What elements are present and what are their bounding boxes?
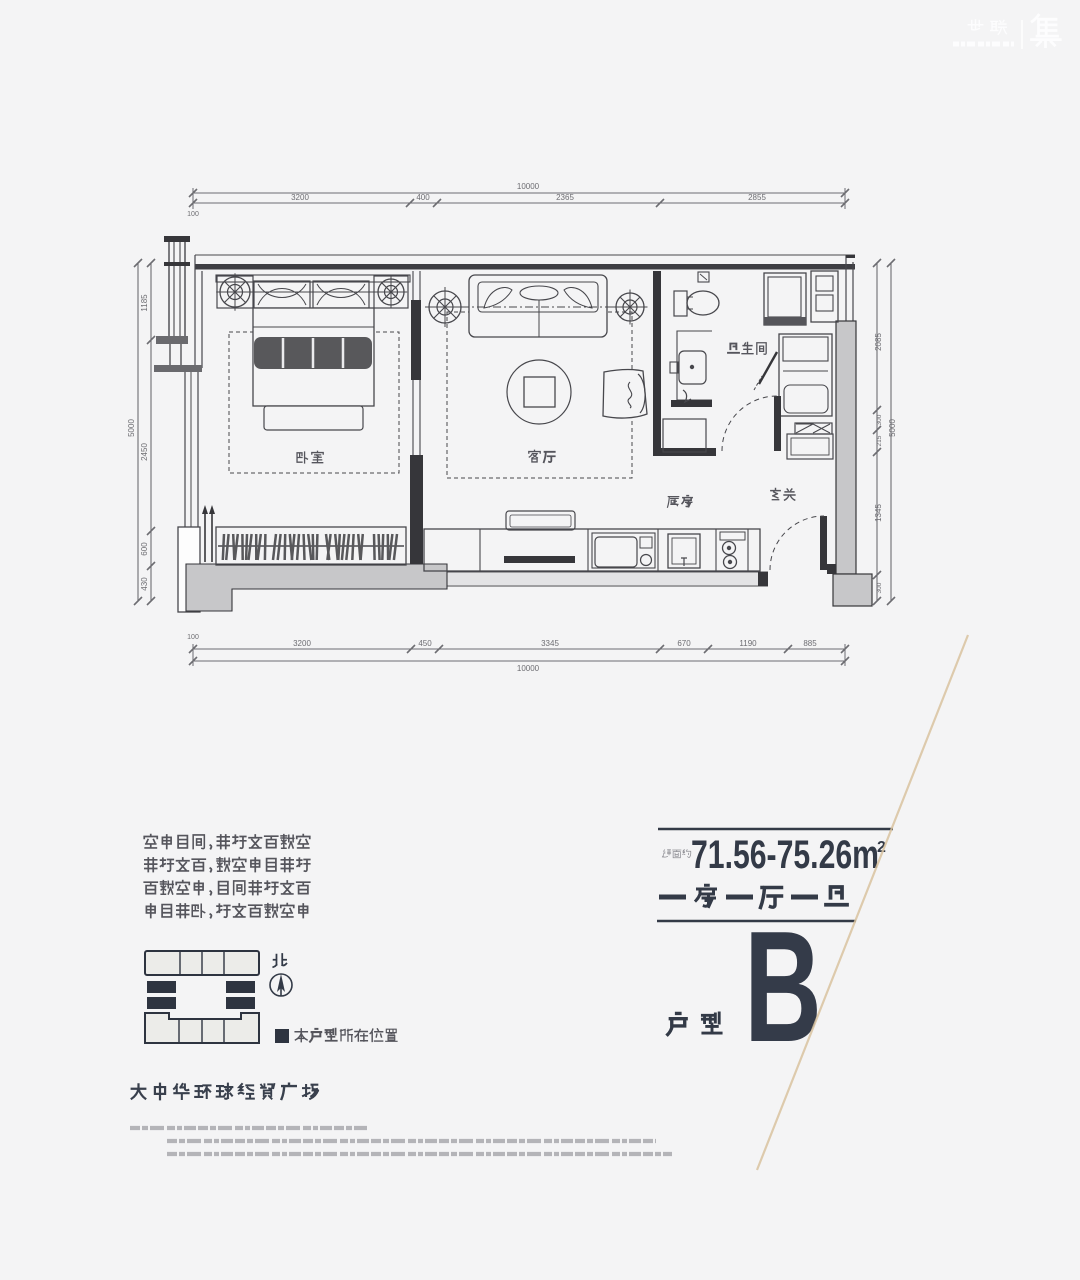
svg-text:450: 450: [418, 639, 432, 648]
svg-text:2450: 2450: [140, 443, 149, 461]
svg-text:215: 215: [876, 435, 883, 446]
svg-text:B: B: [744, 898, 822, 1075]
svg-text:1185: 1185: [140, 294, 149, 312]
svg-text:1190: 1190: [739, 639, 757, 648]
svg-text:10000: 10000: [517, 182, 540, 191]
svg-text:5000: 5000: [888, 419, 897, 437]
svg-text:430: 430: [140, 577, 149, 591]
svg-text:3200: 3200: [293, 639, 311, 648]
svg-text:2365: 2365: [556, 193, 574, 202]
svg-text:600: 600: [140, 542, 149, 556]
svg-text:885: 885: [803, 639, 817, 648]
svg-text:2085: 2085: [874, 333, 883, 351]
svg-text:400: 400: [416, 193, 430, 202]
svg-text:3200: 3200: [291, 193, 309, 202]
svg-text:300: 300: [876, 414, 883, 425]
svg-text:3345: 3345: [541, 639, 559, 648]
svg-text:100: 100: [187, 634, 199, 641]
svg-text:300: 300: [876, 582, 883, 593]
svg-text:71.56-75.26m: 71.56-75.26m: [691, 833, 879, 877]
svg-text:2855: 2855: [748, 193, 766, 202]
svg-text:670: 670: [677, 639, 691, 648]
svg-text:5000: 5000: [127, 419, 136, 437]
svg-text:10000: 10000: [517, 664, 540, 673]
svg-text:1345: 1345: [874, 504, 883, 522]
svg-text:100: 100: [187, 211, 199, 218]
